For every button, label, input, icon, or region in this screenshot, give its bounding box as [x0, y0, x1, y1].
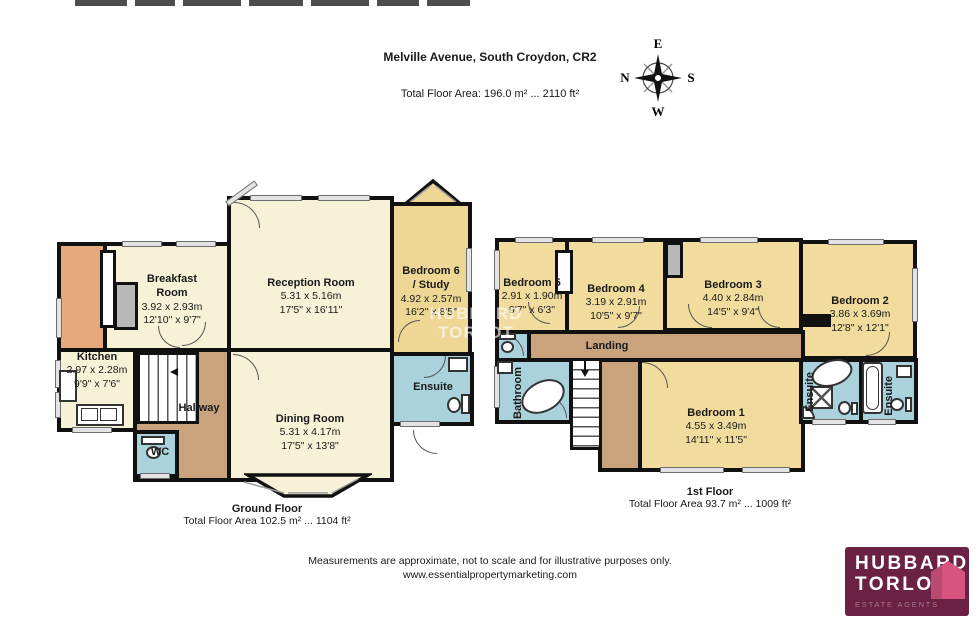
- compass-south-label: S: [687, 70, 694, 85]
- room-dim-metric: 2.97 x 2.28m: [57, 364, 137, 378]
- ff-closet: [665, 242, 683, 278]
- room-dim-metric: 3.92 x 2.93m: [132, 301, 212, 315]
- room-dim-metric: 4.92 x 2.57m: [395, 293, 467, 307]
- room-name: Kitchen: [57, 350, 137, 364]
- room-dim-imperial: 9'9" x 7'6": [57, 378, 137, 392]
- room-dim-imperial: 10'5" x 9'7": [566, 310, 666, 324]
- door-arc: [413, 430, 437, 454]
- room-label-hallway: Hallway: [159, 401, 239, 415]
- top-crop-artifact: [427, 0, 470, 6]
- room-label-bedroom4: Bedroom 4 3.19 x 2.91m 10'5" x 9'7": [566, 282, 666, 324]
- toilet-bowl: [838, 401, 851, 415]
- room-name: Bedroom 1: [645, 406, 787, 420]
- floor-area: Total Floor Area 93.7 m² ... 1009 ft²: [575, 498, 845, 510]
- ensuite-sink: [448, 357, 468, 372]
- room-dim-metric: 4.40 x 2.84m: [672, 292, 794, 306]
- page-title: Melville Avenue, South Croydon, CR2: [0, 50, 980, 64]
- room-name-line2: / Study: [395, 278, 467, 292]
- website-text: www.essentialpropertymarketing.com: [0, 569, 980, 581]
- floor-name: Ground Floor: [132, 503, 402, 515]
- room-dim-metric: 4.55 x 3.49m: [645, 420, 787, 434]
- window: [828, 239, 884, 245]
- logo-tagline: ESTATE AGENTS: [855, 600, 939, 609]
- gf-stairs-arrow: [170, 368, 178, 376]
- room-label-reception: Reception Room 5.31 x 5.16m 17'5" x 16'1…: [241, 276, 381, 318]
- room-dim-metric: 3.19 x 2.91m: [566, 296, 666, 310]
- room-name: Ensuite: [883, 376, 895, 416]
- room-name: Ensuite: [804, 372, 816, 412]
- top-crop-artifact: [135, 0, 175, 6]
- room-name: Landing: [567, 339, 647, 353]
- toilet-bowl: [501, 341, 514, 353]
- total-floor-area: Total Floor Area: 196.0 m² ... 2110 ft²: [0, 88, 980, 100]
- hubbard-torlot-logo: HUBBARD TORLOT ESTATE AGENTS: [845, 547, 969, 616]
- logo-house-icon: [931, 561, 965, 599]
- room-dim-imperial: 12'10" x 9'7": [132, 314, 212, 328]
- room-name: Bedroom 5: [494, 276, 570, 290]
- room-dim-imperial: 16'2" x 8'5": [395, 306, 467, 320]
- gf-dining-bay-window: [244, 473, 372, 499]
- floor-name: 1st Floor: [575, 486, 845, 498]
- room-label-landing: Landing: [567, 339, 647, 353]
- room-name: Bedroom 4: [566, 282, 666, 296]
- toilet-cistern: [905, 397, 912, 412]
- toilet-cistern: [461, 394, 470, 414]
- top-crop-artifact: [183, 0, 241, 6]
- room-label-bedroom3: Bedroom 3 4.40 x 2.84m 14'5" x 9'4": [672, 278, 794, 320]
- window: [72, 427, 112, 433]
- window: [122, 241, 162, 247]
- room-label-kitchen: Kitchen 2.97 x 2.28m 9'9" x 7'6": [57, 350, 137, 392]
- room-label-bedroom6: Bedroom 6 / Study 4.92 x 2.57m 16'2" x 8…: [395, 264, 467, 320]
- window: [140, 473, 170, 479]
- toilet-cistern: [851, 402, 858, 415]
- room-label-bedroom2: Bedroom 2 3.86 x 3.69m 12'8" x 12'1": [803, 294, 917, 336]
- kitchen-sink-bowl: [100, 408, 117, 421]
- room-label-dining: Dining Room 5.31 x 4.17m 17'5" x 13'8": [240, 412, 380, 454]
- room-dim-imperial: 12'8" x 12'1": [803, 322, 917, 336]
- window: [56, 298, 62, 338]
- window: [592, 237, 644, 243]
- room-dim-imperial: 14'5" x 9'4": [672, 306, 794, 320]
- toilet-cistern: [141, 436, 165, 445]
- room-label-bedroom5: Bedroom 5 2.91 x 1.90m 9'7" x 6'3": [494, 276, 570, 318]
- first-floor-title: 1st Floor Total Floor Area 93.7 m² ... 1…: [575, 486, 845, 510]
- room-name: Bedroom 3: [672, 278, 794, 292]
- room-dim-metric: 5.31 x 4.17m: [240, 426, 380, 440]
- top-crop-artifact: [75, 0, 127, 6]
- room-label-breakfast: Breakfast Room 3.92 x 2.93m 12'10" x 9'7…: [132, 272, 212, 328]
- room-name: Bedroom 6: [395, 264, 467, 278]
- room-dim-imperial: 17'5" x 16'11": [241, 304, 381, 318]
- window: [660, 467, 724, 473]
- room-dim-imperial: 9'7" x 6'3": [494, 304, 570, 318]
- kitchen-sink-bowl: [81, 408, 98, 421]
- ground-floor-title: Ground Floor Total Floor Area 102.5 m² .…: [132, 503, 402, 527]
- window: [318, 195, 370, 201]
- top-crop-artifact: [311, 0, 369, 6]
- room-dim-metric: 5.31 x 5.16m: [241, 290, 381, 304]
- room-name: Bedroom 2: [803, 294, 917, 308]
- ff-stairs-arrow-stem: [584, 361, 586, 370]
- window: [515, 237, 553, 243]
- room-dim-imperial: 17'5" x 13'8": [240, 440, 380, 454]
- ensuite-sink: [896, 365, 912, 378]
- window: [812, 419, 846, 425]
- compass-rose-icon: E N S W: [616, 34, 700, 120]
- room-label-ensuite-back: Ensuite: [882, 372, 896, 420]
- toilet-bowl: [447, 397, 461, 413]
- top-crop-artifact: [249, 0, 303, 6]
- room-name: Bathroom: [512, 367, 524, 419]
- ensuite-bathtub-inner: [866, 366, 879, 410]
- window: [250, 195, 302, 201]
- room-name: Reception Room: [241, 276, 381, 290]
- compass-west-label: W: [652, 104, 665, 119]
- ff-stairs-arrow: [581, 370, 589, 377]
- room-dim-metric: 3.86 x 3.69m: [803, 308, 917, 322]
- top-crop-artifact: [377, 0, 419, 6]
- window: [176, 241, 216, 247]
- toilet-cistern: [499, 333, 516, 340]
- room-label-gf-ensuite: Ensuite: [398, 380, 468, 394]
- room-dim-imperial: 14'11" x 11'5": [645, 434, 787, 448]
- room-name: Hallway: [159, 401, 239, 415]
- room-label-bedroom1: Bedroom 1 4.55 x 3.49m 14'11" x 11'5": [645, 406, 787, 448]
- ff-landing-column: [598, 358, 642, 472]
- floorplan-page: Melville Avenue, South Croydon, CR2 Tota…: [0, 0, 980, 624]
- window: [700, 237, 758, 243]
- disclaimer-text: Measurements are approximate, not to sca…: [0, 555, 980, 567]
- room-label-wc: WC: [140, 445, 180, 459]
- floor-area: Total Floor Area 102.5 m² ... 1104 ft²: [132, 515, 402, 527]
- room-label-ensuite-front: Ensuite: [803, 368, 817, 416]
- window: [742, 467, 790, 473]
- compass-north-label: N: [620, 70, 630, 85]
- room-name: Breakfast Room: [132, 272, 212, 301]
- window: [400, 421, 440, 427]
- room-name: WC: [140, 445, 180, 459]
- room-name: Dining Room: [240, 412, 380, 426]
- compass-east-label: E: [654, 36, 663, 51]
- room-label-bathroom: Bathroom: [510, 366, 526, 420]
- room-dim-metric: 2.91 x 1.90m: [494, 290, 570, 304]
- room-name: Ensuite: [398, 380, 468, 394]
